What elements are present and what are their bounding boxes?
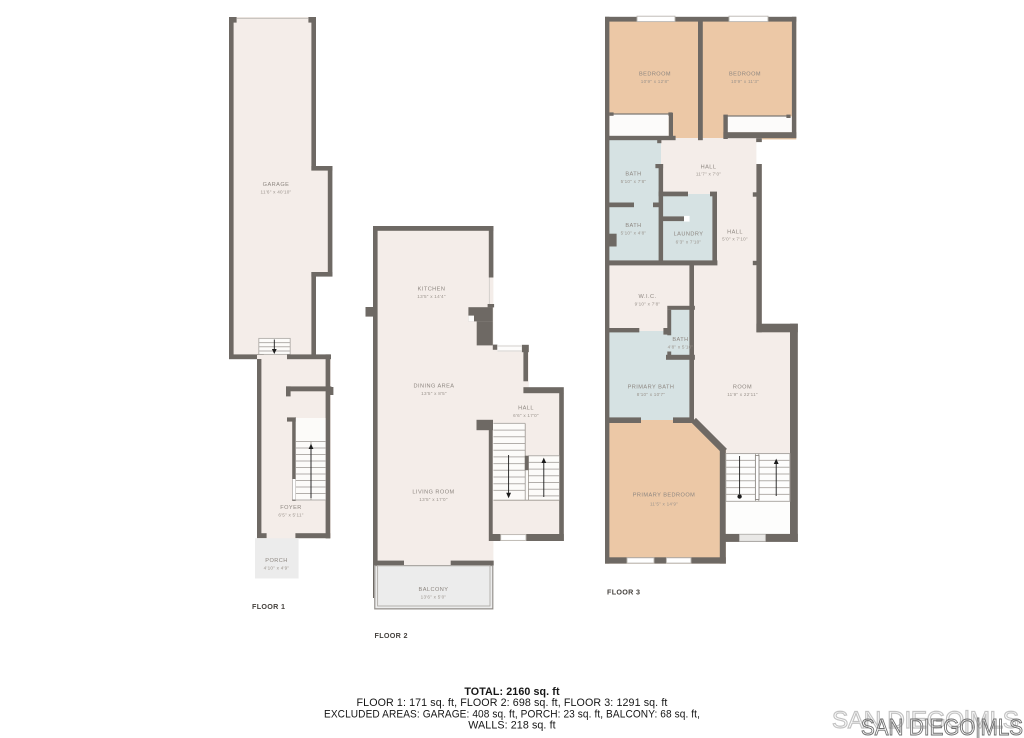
svg-text:BATH: BATH xyxy=(625,223,641,229)
svg-text:4'8" x 5'10": 4'8" x 5'10" xyxy=(668,345,694,350)
svg-text:PORCH: PORCH xyxy=(265,558,287,564)
svg-text:BEDROOM: BEDROOM xyxy=(729,72,761,78)
svg-text:13'5" x 17'0": 13'5" x 17'0" xyxy=(419,497,448,502)
svg-text:5'10" x 7'8": 5'10" x 7'8" xyxy=(621,179,647,184)
svg-text:6'5" x 5'11": 6'5" x 5'11" xyxy=(278,513,303,518)
svg-text:HALL: HALL xyxy=(518,406,534,412)
svg-text:PRIMARY BATH: PRIMARY BATH xyxy=(628,385,675,391)
svg-text:5'0" x 7'10": 5'0" x 7'10" xyxy=(722,237,748,242)
svg-text:DINING AREA: DINING AREA xyxy=(413,384,454,390)
svg-text:EXCLUDED AREAS: GARAGE: 408 sq: EXCLUDED AREAS: GARAGE: 408 sq. ft, PORC… xyxy=(324,708,700,720)
svg-text:GARAGE: GARAGE xyxy=(263,182,290,188)
svg-text:FLOOR 3: FLOOR 3 xyxy=(607,588,640,597)
svg-text:HALL: HALL xyxy=(727,230,743,236)
svg-text:13'6" x 5'0": 13'6" x 5'0" xyxy=(421,595,447,600)
svg-text:13'5" x 8'5": 13'5" x 8'5" xyxy=(421,391,447,396)
svg-text:4'10" x 4'9": 4'10" x 4'9" xyxy=(264,566,290,571)
svg-text:9'10" x 7'8": 9'10" x 7'8" xyxy=(635,302,661,307)
svg-text:LAUNDRY: LAUNDRY xyxy=(674,232,704,238)
svg-text:11'5" x 14'9": 11'5" x 14'9" xyxy=(650,502,678,507)
svg-text:6'6" x 17'0": 6'6" x 17'0" xyxy=(513,413,539,418)
svg-text:11'7" x 7'0": 11'7" x 7'0" xyxy=(696,172,721,177)
svg-text:FLOOR 2: FLOOR 2 xyxy=(375,631,408,640)
svg-text:FLOOR 1: FLOOR 1 xyxy=(252,602,285,611)
svg-text:8'10" x 10'7": 8'10" x 10'7" xyxy=(637,392,666,397)
svg-text:6'3" x 7'10": 6'3" x 7'10" xyxy=(676,240,702,245)
svg-text:10'9" x 11'3": 10'9" x 11'3" xyxy=(731,79,759,84)
svg-text:FOYER: FOYER xyxy=(280,505,302,511)
svg-text:BATH: BATH xyxy=(672,337,688,343)
svg-text:BALCONY: BALCONY xyxy=(419,587,449,593)
svg-text:11'9" x 22'11": 11'9" x 22'11" xyxy=(727,392,758,397)
svg-text:10'9" x 12'8": 10'9" x 12'8" xyxy=(641,79,670,84)
svg-text:5'10" x 4'8": 5'10" x 4'8" xyxy=(621,231,647,236)
svg-text:PRIMARY BEDROOM: PRIMARY BEDROOM xyxy=(633,493,696,499)
svg-text:ROOM: ROOM xyxy=(733,385,752,391)
svg-text:11'6" x 40'10": 11'6" x 40'10" xyxy=(261,190,292,195)
svg-text:LIVING ROOM: LIVING ROOM xyxy=(412,490,454,496)
svg-text:TOTAL: 2160 sq. ft: TOTAL: 2160 sq. ft xyxy=(464,686,560,698)
svg-text:BATH: BATH xyxy=(625,172,641,178)
svg-text:HALL: HALL xyxy=(701,165,717,171)
svg-text:KITCHEN: KITCHEN xyxy=(418,287,446,293)
svg-text:WALLS: 218 sq. ft: WALLS: 218 sq. ft xyxy=(468,720,555,732)
svg-text:13'5" x 14'4": 13'5" x 14'4" xyxy=(417,294,446,299)
svg-text:W.I.C.: W.I.C. xyxy=(639,294,657,300)
svg-text:BEDROOM: BEDROOM xyxy=(639,72,671,78)
svg-text:SAN DIEGO|MLS: SAN DIEGO|MLS xyxy=(861,714,1023,738)
svg-text:FLOOR 1: 171 sq. ft, FLOOR 2:: FLOOR 1: 171 sq. ft, FLOOR 2: 698 sq. ft… xyxy=(357,697,668,709)
